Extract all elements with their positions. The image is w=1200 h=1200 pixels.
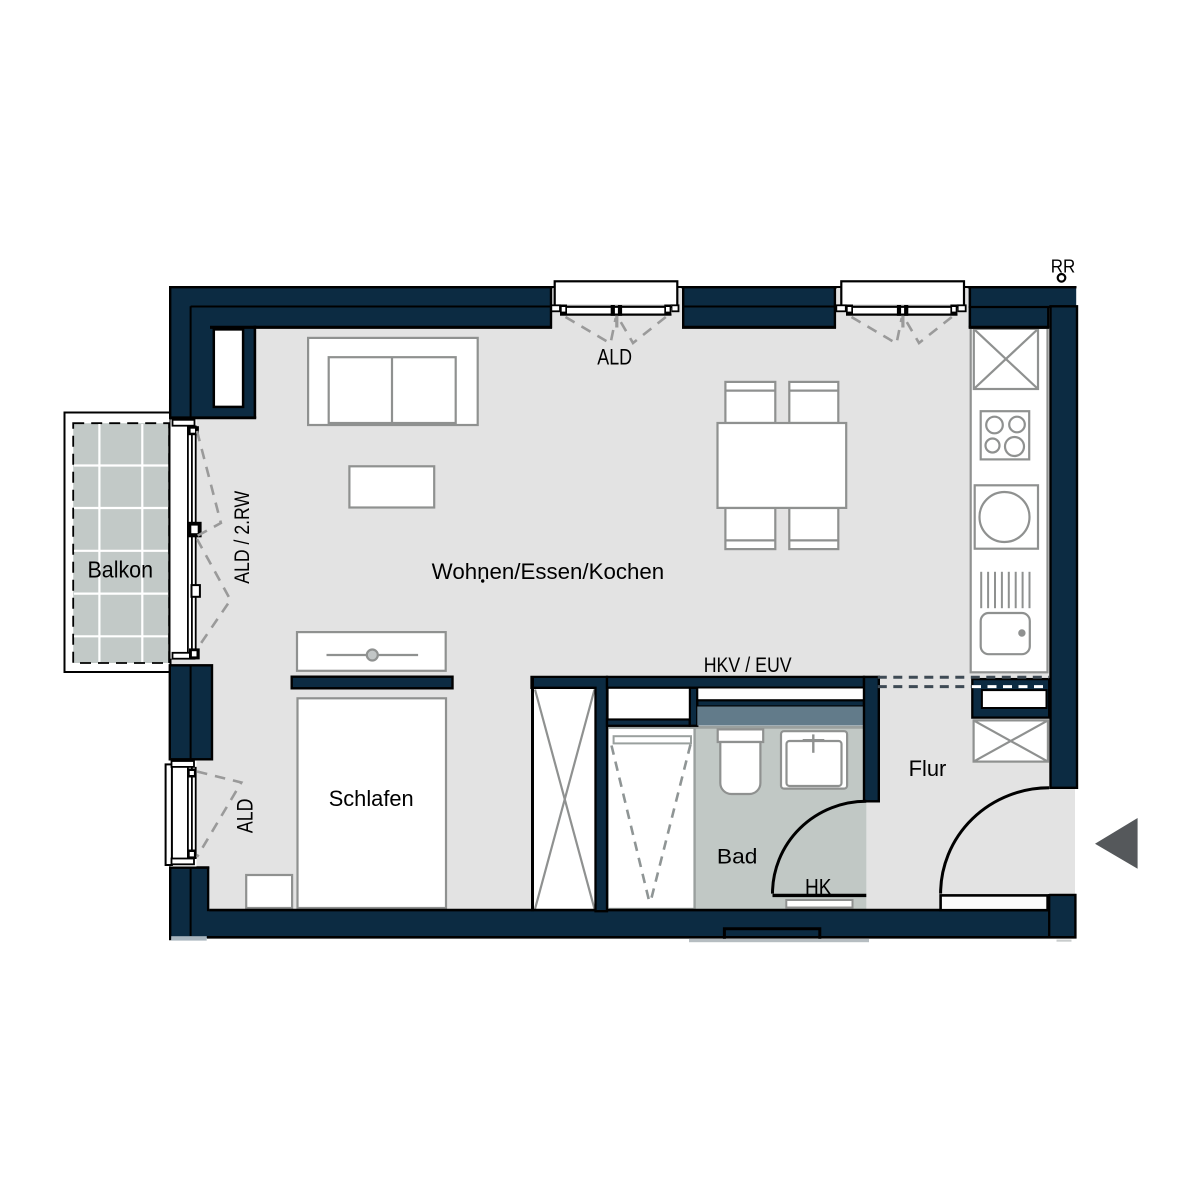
svg-text:Schlafen: Schlafen [329,786,414,811]
svg-text:HKV / EUV: HKV / EUV [704,654,792,677]
svg-text:Balkon: Balkon [88,556,154,582]
svg-text:HK: HK [805,875,832,900]
svg-text:Flur: Flur [909,756,947,781]
svg-text:Bad: Bad [717,845,758,868]
svg-text:ALD / 2.RW: ALD / 2.RW [231,491,254,584]
svg-text:ALD: ALD [233,799,258,834]
svg-text:Wohnen/Essen/Kochen: Wohnen/Essen/Kochen [432,559,665,584]
svg-text:ALD: ALD [597,345,632,370]
